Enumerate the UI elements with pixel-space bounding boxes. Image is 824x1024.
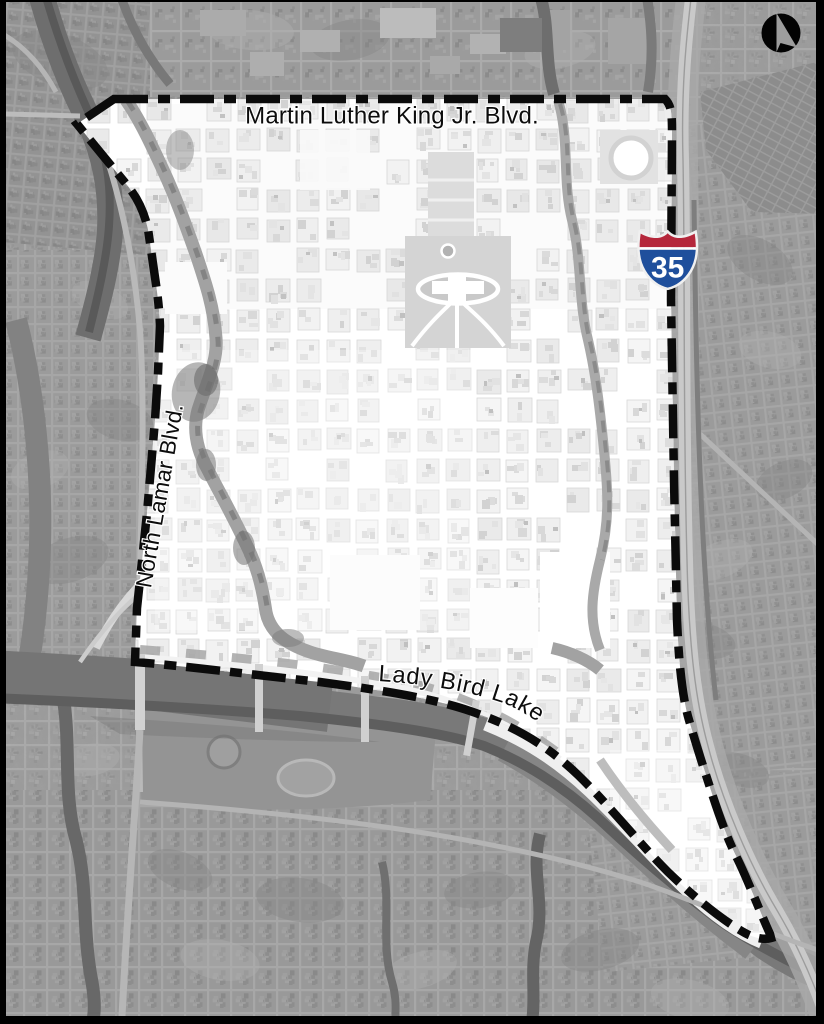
svg-text:35: 35 xyxy=(651,252,684,285)
svg-text:Martin Luther King Jr. Blvd.: Martin Luther King Jr. Blvd. xyxy=(245,103,539,130)
